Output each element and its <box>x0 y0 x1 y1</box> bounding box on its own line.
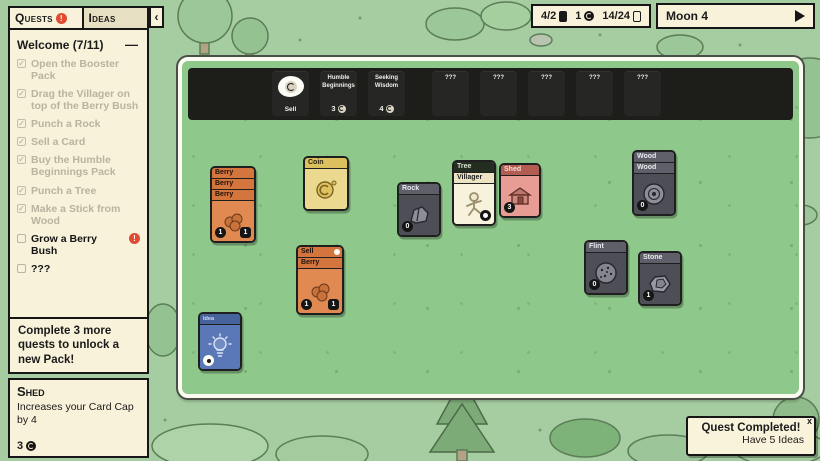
card-outline-icon <box>633 11 641 22</box>
pack-seeking-wisdom[interactable]: Seeking Wisdom 4 <box>368 71 405 116</box>
pack-locked[interactable]: ??? <box>528 71 565 116</box>
idea-count-badge <box>203 355 214 366</box>
checkbox-checked-icon: ✓ <box>17 204 26 213</box>
tooltip-coin-value: 3 <box>17 440 36 452</box>
quest-item-unknown: ??? <box>17 263 140 275</box>
toast-subtitle: Have 5 Ideas <box>694 434 808 446</box>
quest-group-title: Welcome (7/11) <box>17 38 103 52</box>
coin-icon <box>338 105 346 113</box>
pack-humble-beginnings[interactable]: Humble Beginnings 3 <box>320 71 357 116</box>
coin-value-badge: 1 <box>215 227 226 238</box>
resource-counters: 4/2 1 14/24 <box>531 4 651 28</box>
checkbox-checked-icon: ✓ <box>17 137 26 146</box>
checkbox-checked-icon: ✓ <box>17 186 26 195</box>
card-berry-stack[interactable]: Berry Berry Berry 1 1 <box>210 166 256 243</box>
pack-locked[interactable]: ??? <box>432 71 469 116</box>
coin-value-badge: 0 <box>402 221 413 232</box>
pack-price: 4 <box>379 104 393 113</box>
pack-locked[interactable]: ??? <box>480 71 517 116</box>
card-shed[interactable]: Shed 3 <box>499 163 541 218</box>
card-stone[interactable]: Stone 1 <box>638 251 682 306</box>
tab-ideas[interactable]: Ideas <box>82 8 147 28</box>
coin-value-badge: 0 <box>637 200 648 211</box>
moon-label: Moon 4 <box>666 9 708 23</box>
quest-item-active: Grow a Berry Bush ! <box>17 233 140 257</box>
quest-item: ✓ Sell a Card <box>17 136 140 148</box>
checkbox-checked-icon: ✓ <box>17 59 26 68</box>
quest-completed-toast: x Quest Completed! Have 5 Ideas <box>686 416 816 456</box>
sell-coin-dot-icon <box>334 249 340 255</box>
toast-title: Quest Completed! <box>694 422 808 434</box>
chevron-left-icon: ‹ <box>155 10 159 24</box>
sell-slot[interactable]: Sell <box>272 71 309 116</box>
card-filled-icon <box>559 11 567 22</box>
pack-price: 3 <box>331 104 345 113</box>
coins-counter: 1 <box>575 10 594 22</box>
collapse-panel-button[interactable]: ‹ <box>149 6 164 28</box>
card-sell-berry-stack[interactable]: Sell Berry 1 1 <box>296 245 344 315</box>
quest-item: ✓ Punch a Tree <box>17 185 140 197</box>
pack-locked[interactable]: ??? <box>576 71 613 116</box>
checkbox-empty-icon <box>17 234 26 243</box>
checkbox-checked-icon: ✓ <box>17 119 26 128</box>
coin-value-badge: 0 <box>589 279 600 290</box>
card-rock[interactable]: Rock 0 <box>397 182 441 237</box>
sell-blob-icon <box>278 76 304 97</box>
tab-ideas-label: Ideas <box>89 11 116 25</box>
checkbox-empty-icon <box>17 264 26 273</box>
tooltip-title: Shed <box>17 384 140 399</box>
quest-item: ✓ Make a Stick from Wood <box>17 203 140 227</box>
coin-icon <box>285 81 297 93</box>
quests-panel: Quests ! Ideas Welcome (7/11) — ✓ Open t… <box>8 6 149 374</box>
panel-tabs: Quests ! Ideas <box>10 8 147 30</box>
quest-item: ✓ Buy the Humble Beginnings Pack <box>17 154 140 178</box>
quest-list: Welcome (7/11) — ✓ Open the Booster Pack… <box>10 30 147 275</box>
card-cap-counter: 14/24 <box>602 10 641 22</box>
pack-shelf: Sell Humble Beginnings 3 Seeking Wisdom … <box>188 68 793 120</box>
moon-timer-bar[interactable]: Moon 4 <box>656 3 815 29</box>
coin-art-icon <box>313 176 339 202</box>
card-tooltip-panel: Shed Increases your Card Cap by 4 3 <box>8 378 149 458</box>
sell-slot-label: Sell <box>285 106 297 113</box>
tooltip-description: Increases your Card Cap by 4 <box>17 401 140 426</box>
quest-item: ✓ Drag the Villager on top of the Berry … <box>17 88 140 112</box>
card-wood-stack[interactable]: Wood Wood 0 <box>632 150 676 216</box>
card-coin[interactable]: Coin <box>303 156 349 211</box>
game-screen: Quests ! Ideas Welcome (7/11) — ✓ Open t… <box>0 0 820 461</box>
coin-icon <box>26 441 36 451</box>
tab-quests-label: Quests <box>15 11 53 25</box>
quest-alert-icon: ! <box>129 233 140 244</box>
tab-quests[interactable]: Quests ! <box>10 8 82 28</box>
quest-item: ✓ Open the Booster Pack <box>17 58 140 82</box>
checkbox-checked-icon: ✓ <box>17 89 26 98</box>
food-value-badge: 1 <box>240 227 251 238</box>
coin-icon <box>584 11 594 21</box>
coin-icon <box>386 105 394 113</box>
quest-item: ✓ Punch a Rock <box>17 118 140 130</box>
quests-alert-icon: ! <box>56 13 67 24</box>
quests-footer-note: Complete 3 more quests to unlock a new P… <box>10 317 147 372</box>
card-flint[interactable]: Flint 0 <box>584 240 628 295</box>
close-icon[interactable]: x <box>807 417 812 426</box>
timer-icon <box>483 213 488 218</box>
card-idea[interactable]: Idea <box>198 312 242 371</box>
collapse-group-button[interactable]: — <box>123 37 140 52</box>
cards-counter: 4/2 <box>541 10 567 22</box>
coin-value-badge: 3 <box>504 202 515 213</box>
checkbox-checked-icon: ✓ <box>17 155 26 164</box>
pack-locked[interactable]: ??? <box>624 71 661 116</box>
play-icon[interactable] <box>795 10 805 22</box>
food-value-badge: 1 <box>328 299 339 310</box>
quest-group-header: Welcome (7/11) — <box>17 37 140 52</box>
coin-value-badge: 1 <box>643 290 654 301</box>
card-tree-villager-stack[interactable]: Tree Villager <box>452 160 496 226</box>
coin-value-badge: 1 <box>301 299 312 310</box>
bulb-icon <box>207 359 211 363</box>
play-board[interactable]: Sell Humble Beginnings 3 Seeking Wisdom … <box>178 57 803 398</box>
harvest-timer-badge <box>480 210 491 221</box>
